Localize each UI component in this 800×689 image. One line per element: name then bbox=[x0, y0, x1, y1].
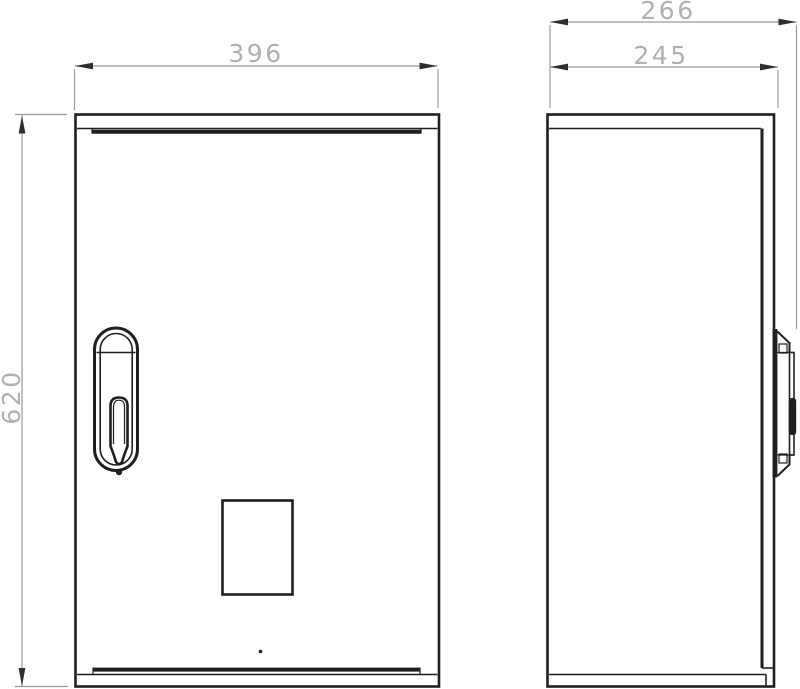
technical-drawing-canvas: 396 620 266 245 bbox=[0, 0, 800, 689]
dim-front-width: 396 bbox=[75, 39, 439, 110]
enclosure-two-view-drawing: 396 620 266 245 bbox=[0, 0, 800, 689]
side-view bbox=[548, 115, 797, 687]
dim-side-depth-body-value: 245 bbox=[633, 41, 688, 70]
dim-front-width-value: 396 bbox=[228, 39, 283, 68]
front-view bbox=[76, 115, 440, 687]
front-cutout-window bbox=[223, 501, 293, 595]
front-door-pin-dot bbox=[259, 650, 263, 654]
arrow-up-icon bbox=[19, 116, 26, 134]
arrow-right-icon bbox=[420, 63, 438, 70]
arrow-right-icon bbox=[779, 19, 797, 26]
arrow-left-icon bbox=[550, 64, 568, 71]
dim-front-height: 620 bbox=[0, 115, 68, 687]
arrow-left-icon bbox=[75, 63, 93, 70]
dim-side-depth-overall-value: 266 bbox=[640, 0, 695, 25]
dim-side-depth-body: 245 bbox=[550, 41, 778, 108]
door-handle bbox=[95, 328, 138, 475]
handle-lock-dot bbox=[116, 469, 122, 475]
handle-side-pivot-top bbox=[779, 344, 787, 353]
arrow-down-icon bbox=[19, 668, 26, 686]
arrow-right-icon bbox=[760, 64, 778, 71]
handle-side-latch-block bbox=[789, 398, 796, 435]
dim-front-height-value: 620 bbox=[0, 369, 26, 424]
side-outline bbox=[548, 115, 775, 687]
handle-side-base-plate bbox=[773, 329, 778, 478]
door-handle-side bbox=[773, 329, 797, 478]
arrow-left-icon bbox=[550, 19, 568, 26]
